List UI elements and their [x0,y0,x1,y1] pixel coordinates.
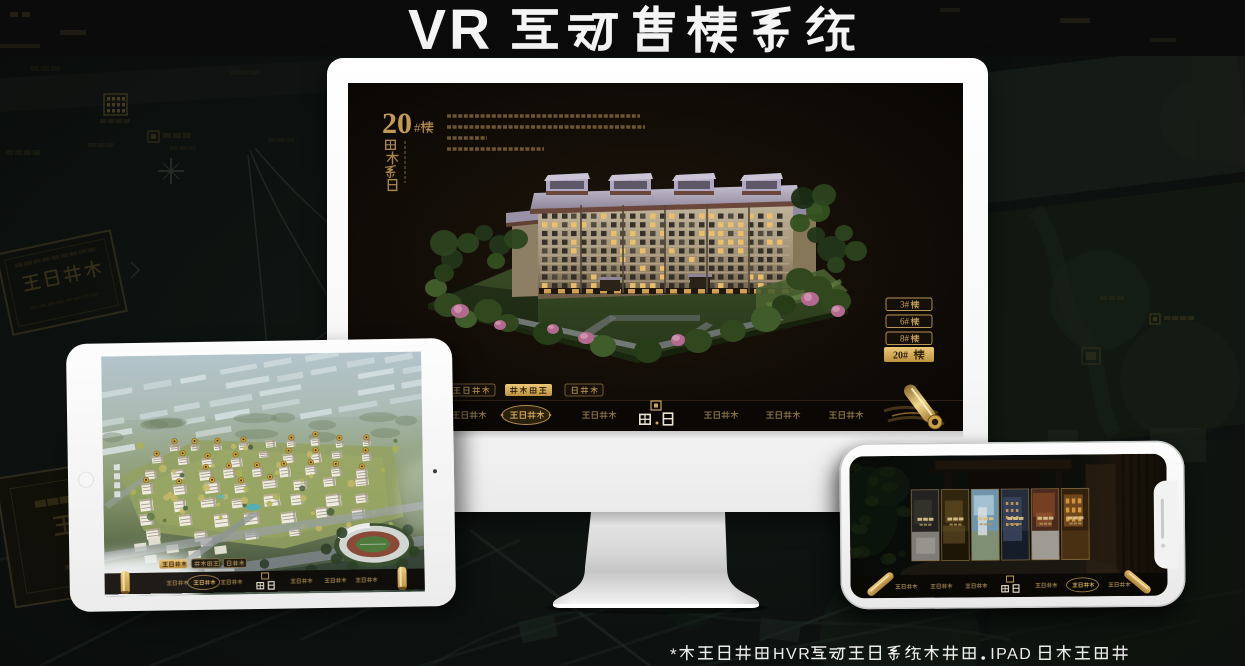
svg-text:*: * [670,645,677,664]
svg-text:6#: 6# [900,317,910,327]
svg-text:VR: VR [408,0,493,58]
svg-text:3#: 3# [900,300,910,310]
svg-text:20#: 20# [893,351,908,362]
svg-text:#: # [414,120,421,135]
svg-text:20: 20 [382,107,412,140]
svg-text:IPAD: IPAD [990,646,1032,663]
svg-text:HVR: HVR [773,646,811,663]
svg-text:8#: 8# [900,334,910,344]
